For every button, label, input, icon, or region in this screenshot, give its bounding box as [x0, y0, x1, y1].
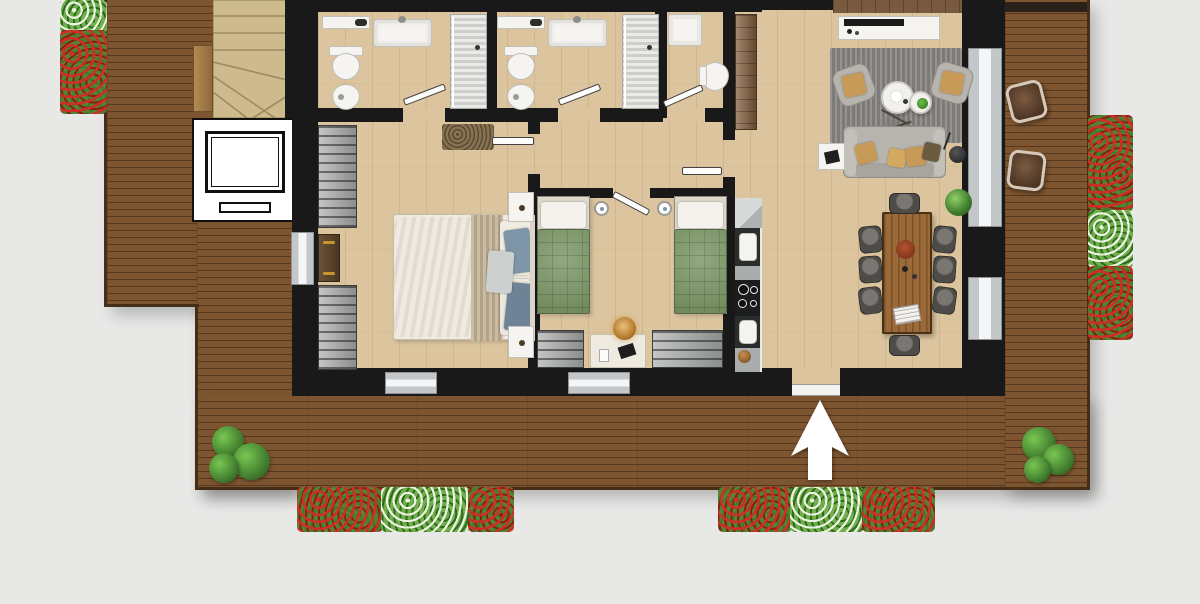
tv-screen — [844, 19, 904, 26]
bath1-shower-drain — [475, 45, 480, 50]
tv-deco-1 — [847, 29, 852, 34]
dining-chair-left-2 — [858, 255, 883, 284]
planter-south2-red-left — [718, 487, 792, 532]
deck-right — [1005, 0, 1090, 490]
bush-sw-3 — [209, 453, 239, 483]
hall-living-door — [682, 167, 722, 175]
bath1-bidet-drain — [338, 94, 344, 100]
floor-lamp — [949, 146, 966, 163]
doorway-wc — [663, 108, 705, 122]
elevator — [192, 118, 298, 222]
wc-toilet-tank — [699, 66, 707, 86]
deck-bottom — [197, 395, 1090, 490]
coffee-table-small — [909, 91, 932, 114]
window-south-2 — [568, 372, 630, 394]
twin-desk-lamp — [613, 317, 636, 340]
elevator-car — [205, 131, 285, 193]
burner-3 — [738, 299, 747, 308]
dining-chair-right-2 — [932, 255, 957, 284]
burner-1 — [738, 284, 749, 295]
table-bowl — [896, 240, 915, 259]
hall-cabinet — [735, 14, 757, 130]
wc-sink — [668, 14, 702, 46]
planter-south1-red-right — [468, 487, 514, 532]
planter-south1-red-left — [297, 487, 383, 532]
armchair-right-cushion — [939, 70, 964, 95]
bath1-accessories — [355, 19, 367, 26]
master-nightstand-north — [508, 192, 534, 222]
planter-south1-green — [381, 487, 470, 532]
wall-master-stub — [528, 118, 540, 134]
elevator-door — [219, 202, 271, 213]
kitchen-kettle — [738, 350, 751, 363]
twin1-blanket — [537, 229, 590, 314]
dining-chair-bottom — [889, 335, 920, 356]
bench-handle-bottom — [323, 272, 335, 275]
bush-sw-2 — [233, 443, 270, 480]
desk-notebook — [618, 343, 637, 359]
wall-top-living — [762, 0, 833, 10]
master-nightstand-south — [508, 326, 534, 358]
master-headboard — [530, 215, 535, 341]
doorway-bathroom-2 — [558, 108, 600, 122]
twin2-pillow — [678, 202, 723, 228]
bath2-faucet — [573, 16, 581, 23]
deck-stool-2 — [1006, 149, 1047, 192]
dining-chair-top — [889, 193, 920, 214]
bench-handle-top — [323, 241, 335, 244]
deck-right-top-trim — [1005, 2, 1087, 12]
bath2-shower — [622, 14, 659, 109]
master-cushion-gray — [486, 250, 515, 294]
bath2-sink-vanity — [548, 19, 607, 47]
planter-west-green — [60, 0, 107, 34]
wall-bath1-bath2 — [487, 0, 497, 118]
planter-west-red — [60, 30, 107, 114]
master-bed — [393, 214, 534, 340]
window-south-1 — [385, 372, 437, 394]
burner-2 — [750, 286, 758, 294]
entrance-arrow-icon — [785, 398, 855, 483]
side-table-deco — [824, 150, 840, 165]
planter-south2-red-right — [862, 487, 935, 532]
twin-sconce-1 — [594, 201, 609, 216]
planter-east-red-top — [1088, 115, 1133, 212]
coffee-deco — [903, 99, 908, 104]
dining-plant — [945, 189, 972, 216]
sconce-dot-2 — [663, 207, 667, 211]
master-door — [492, 137, 534, 145]
burner-4 — [750, 300, 757, 307]
stairs — [213, 0, 287, 118]
armchair-left-cushion — [841, 72, 867, 98]
bath1-faucet — [398, 16, 406, 23]
sofa-pillow-1 — [854, 141, 878, 165]
kitchen-sink — [739, 320, 757, 344]
coffee-plant — [917, 98, 928, 109]
wall-left — [292, 0, 318, 396]
table-deco-1 — [902, 266, 908, 272]
floor-plan — [0, 0, 1200, 604]
planter-east-green — [1088, 210, 1133, 268]
twin-wardrobe-1 — [537, 330, 584, 368]
doorway-bathroom-1 — [403, 108, 445, 122]
planter-south2-green — [790, 487, 864, 532]
bath2-shower-glass — [624, 17, 626, 107]
bath2-accessories — [530, 19, 542, 26]
bath1-shower-glass — [452, 17, 454, 107]
entrance-threshold — [792, 384, 840, 396]
twin-bed-1 — [537, 196, 590, 314]
dining-chair-right-3 — [931, 286, 958, 316]
twin-sconce-2 — [657, 201, 672, 216]
sofa-side-table — [818, 143, 845, 170]
stair-side-board — [193, 45, 213, 112]
twin1-pillow — [541, 202, 586, 228]
bath2-bidet-drain — [513, 94, 519, 100]
deck-edge-step — [104, 304, 199, 307]
tv-deco-2 — [855, 31, 859, 35]
hall-doormat — [442, 124, 494, 150]
kitchen-fridge — [739, 233, 757, 261]
bath1-shower — [450, 14, 487, 109]
sofa — [843, 126, 946, 178]
living-top-shelf — [833, 0, 962, 13]
dining-table — [882, 212, 932, 334]
master-wardrobe-south — [318, 285, 357, 370]
wall-top — [292, 0, 762, 12]
coffee-plate — [890, 90, 903, 103]
deck-edge-left-bottom — [195, 306, 198, 490]
window-east-2 — [968, 277, 1002, 340]
twin-wardrobe-2 — [652, 330, 723, 368]
desk-card — [599, 349, 609, 362]
master-duvet — [394, 217, 474, 337]
elevator-car-inner — [211, 137, 279, 187]
window-west — [291, 232, 314, 285]
nightstand-knob-1 — [519, 205, 525, 211]
master-bench — [318, 234, 340, 282]
table-deco-2 — [912, 274, 917, 279]
kitchen-counter-top — [735, 198, 762, 228]
nightstand-knob-2 — [519, 340, 525, 346]
bush-se-3 — [1024, 456, 1051, 483]
twin2-blanket — [674, 229, 727, 314]
bath2-shower-drain — [647, 45, 652, 50]
twin-desk — [590, 334, 646, 368]
dining-chair-right-1 — [932, 225, 958, 254]
bath1-sink-vanity — [373, 19, 432, 47]
dining-chair-left-3 — [857, 286, 883, 316]
planter-east-red-bottom — [1088, 266, 1133, 340]
tv-console — [838, 16, 940, 40]
dining-chair-left-1 — [858, 225, 884, 254]
kitchen-cooktop — [735, 280, 760, 316]
sconce-dot-1 — [600, 207, 604, 211]
twin-bed-2 — [674, 196, 727, 314]
master-wardrobe-north — [318, 125, 357, 228]
table-book — [893, 304, 922, 325]
